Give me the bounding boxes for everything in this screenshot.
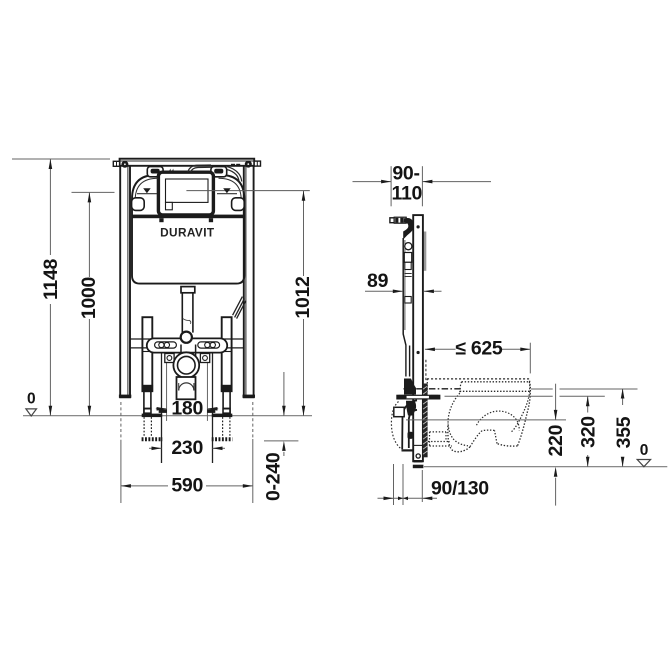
svg-text:0: 0: [27, 391, 35, 408]
svg-text:1148: 1148: [40, 258, 62, 300]
svg-text:≤ 625: ≤ 625: [455, 338, 503, 360]
svg-text:355: 355: [613, 416, 635, 448]
svg-text:DURAVIT: DURAVIT: [160, 226, 215, 240]
svg-text:230: 230: [171, 437, 203, 459]
svg-text:89: 89: [367, 270, 389, 292]
svg-text:1000: 1000: [78, 276, 100, 319]
svg-text:90-: 90-: [392, 162, 419, 184]
svg-text:590: 590: [171, 475, 203, 497]
svg-text:220: 220: [545, 424, 567, 456]
svg-text:110: 110: [392, 183, 423, 205]
svg-text:320: 320: [577, 416, 599, 448]
svg-text:90/130: 90/130: [431, 477, 489, 499]
svg-text:0: 0: [640, 442, 648, 459]
svg-text:180: 180: [171, 398, 203, 420]
svg-text:0-240: 0-240: [263, 452, 285, 501]
svg-text:1012: 1012: [292, 276, 314, 319]
